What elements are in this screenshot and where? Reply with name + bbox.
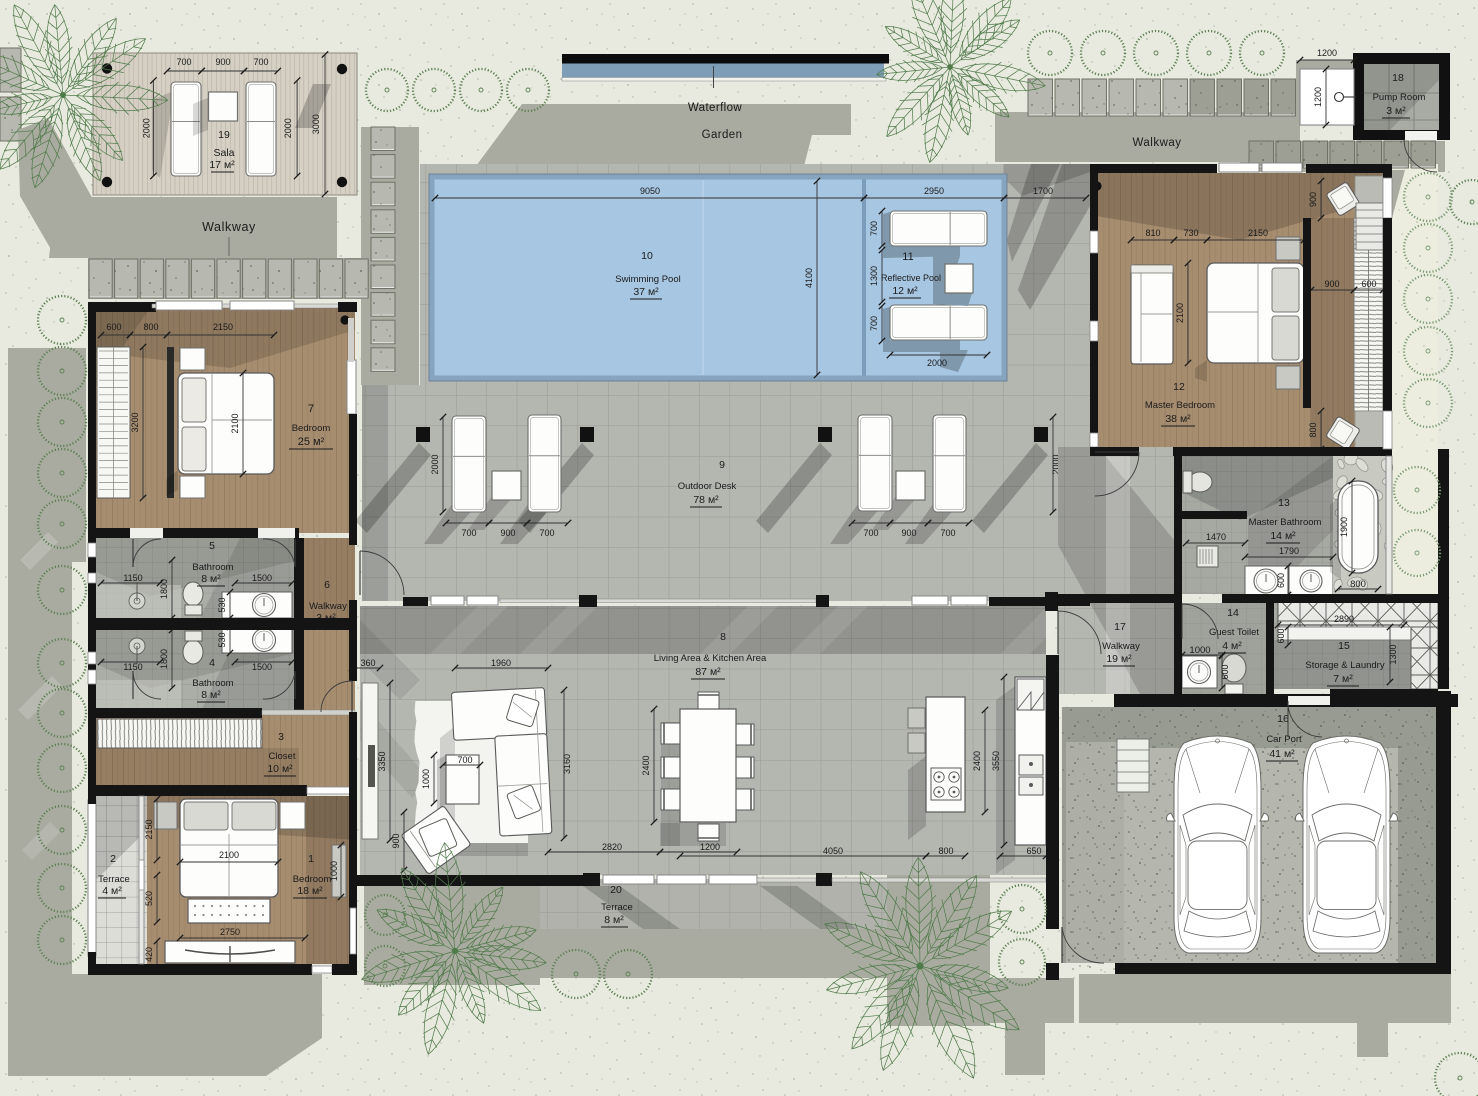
svg-text:600: 600 (1361, 279, 1376, 289)
svg-text:1960: 1960 (491, 658, 511, 668)
svg-text:78 м²: 78 м² (693, 494, 719, 506)
svg-text:3160: 3160 (562, 754, 572, 774)
svg-text:1800: 1800 (159, 579, 169, 599)
svg-text:Bathroom: Bathroom (192, 678, 233, 689)
svg-text:41 м²: 41 м² (1269, 748, 1295, 760)
svg-text:600: 600 (1276, 573, 1286, 588)
svg-text:800: 800 (1350, 579, 1366, 590)
svg-text:Walkway: Walkway (1102, 641, 1140, 652)
svg-text:2100: 2100 (230, 413, 240, 433)
svg-text:Reflective Pool: Reflective Pool (881, 273, 941, 283)
svg-text:600: 600 (1220, 664, 1230, 679)
svg-text:700: 700 (253, 57, 268, 67)
svg-text:Swimming Pool: Swimming Pool (615, 274, 680, 285)
svg-text:2750: 2750 (220, 927, 240, 937)
svg-text:2000: 2000 (141, 118, 151, 138)
svg-text:420: 420 (144, 947, 154, 962)
svg-text:Master Bathroom: Master Bathroom (1249, 517, 1322, 528)
svg-text:Storage & Laundry: Storage & Laundry (1305, 660, 1384, 671)
svg-text:87 м²: 87 м² (695, 666, 721, 678)
svg-text:700: 700 (457, 755, 472, 765)
svg-text:Pump Room: Pump Room (1373, 92, 1426, 103)
svg-text:2: 2 (110, 853, 116, 865)
svg-text:2000: 2000 (283, 118, 293, 138)
svg-text:1800: 1800 (159, 649, 169, 669)
svg-text:1900: 1900 (1339, 517, 1349, 537)
svg-text:14: 14 (1227, 607, 1239, 619)
svg-text:2100: 2100 (1175, 303, 1185, 323)
svg-text:1000: 1000 (421, 769, 431, 789)
svg-text:900: 900 (215, 57, 230, 67)
svg-text:800: 800 (1308, 422, 1318, 437)
svg-text:8 м²: 8 м² (201, 689, 221, 701)
svg-text:Walkway: Walkway (309, 601, 347, 612)
svg-text:8 м²: 8 м² (201, 573, 221, 585)
svg-text:5: 5 (209, 540, 215, 552)
svg-text:17: 17 (1114, 621, 1126, 633)
svg-text:900: 900 (1308, 192, 1318, 207)
svg-text:19 м²: 19 м² (1106, 653, 1132, 665)
svg-text:3200: 3200 (130, 412, 140, 432)
svg-text:8 м²: 8 м² (604, 914, 624, 926)
svg-text:3 м²: 3 м² (1386, 105, 1406, 117)
svg-text:Living Area & Kitchen Area: Living Area & Kitchen Area (654, 653, 767, 664)
svg-text:13: 13 (1278, 497, 1290, 509)
svg-text:2000: 2000 (927, 358, 947, 368)
svg-text:800: 800 (143, 322, 158, 332)
svg-text:Terrace: Terrace (601, 902, 633, 913)
svg-text:8: 8 (720, 631, 726, 643)
svg-text:17 м²: 17 м² (209, 159, 235, 171)
svg-text:2150: 2150 (144, 819, 154, 839)
svg-text:2400: 2400 (972, 751, 982, 771)
svg-text:15: 15 (1338, 640, 1350, 652)
svg-text:10 м²: 10 м² (267, 763, 293, 775)
svg-text:800: 800 (938, 846, 953, 856)
svg-text:Car Port: Car Port (1266, 734, 1302, 745)
svg-text:4 м²: 4 м² (102, 885, 122, 897)
svg-text:Waterflow: Waterflow (688, 102, 743, 114)
svg-text:650: 650 (1026, 846, 1041, 856)
svg-text:6: 6 (324, 579, 330, 591)
svg-text:1500: 1500 (252, 662, 272, 672)
svg-text:1200: 1200 (1313, 87, 1323, 107)
svg-text:12: 12 (1173, 381, 1185, 393)
svg-text:Sala: Sala (213, 147, 234, 159)
svg-text:2400: 2400 (641, 755, 651, 775)
svg-text:2150: 2150 (213, 322, 233, 332)
svg-text:Garden: Garden (702, 129, 743, 141)
svg-text:730: 730 (1183, 228, 1198, 238)
svg-text:700: 700 (869, 316, 879, 331)
svg-text:1150: 1150 (123, 573, 142, 583)
svg-text:4050: 4050 (823, 846, 843, 856)
svg-text:520: 520 (144, 891, 154, 906)
svg-text:1300: 1300 (1388, 644, 1398, 664)
svg-text:600: 600 (1276, 628, 1286, 643)
svg-text:Bedroom: Bedroom (292, 423, 331, 434)
svg-text:1: 1 (308, 853, 314, 865)
svg-text:900: 900 (500, 528, 515, 538)
svg-text:900: 900 (1324, 279, 1339, 289)
svg-text:1300: 1300 (869, 266, 879, 286)
svg-text:14 м²: 14 м² (1270, 530, 1296, 542)
svg-text:2000: 2000 (430, 454, 440, 474)
svg-text:Terrace: Terrace (98, 874, 130, 885)
svg-text:3350: 3350 (377, 751, 387, 771)
svg-text:810: 810 (1145, 228, 1160, 238)
svg-text:1790: 1790 (1279, 546, 1299, 556)
svg-text:700: 700 (539, 528, 554, 538)
svg-text:2820: 2820 (602, 842, 622, 852)
svg-text:700: 700 (461, 528, 476, 538)
svg-text:1500: 1500 (252, 573, 272, 583)
svg-text:20: 20 (610, 884, 622, 896)
svg-text:900: 900 (901, 528, 916, 538)
svg-text:360: 360 (360, 658, 375, 668)
svg-text:19: 19 (218, 129, 230, 141)
svg-text:1700: 1700 (1033, 186, 1053, 196)
svg-text:3550: 3550 (991, 751, 1001, 771)
svg-text:1150: 1150 (123, 662, 142, 672)
svg-text:700: 700 (869, 221, 879, 236)
svg-text:11: 11 (902, 251, 913, 263)
svg-text:Bathroom: Bathroom (192, 562, 233, 573)
svg-text:4 м²: 4 м² (1222, 640, 1242, 652)
svg-text:38 м²: 38 м² (1165, 413, 1191, 425)
svg-text:2890: 2890 (1334, 614, 1354, 624)
svg-text:Master Bedroom: Master Bedroom (1145, 400, 1215, 411)
svg-text:2100: 2100 (219, 850, 239, 860)
svg-text:Walkway: Walkway (1132, 137, 1181, 149)
svg-text:4100: 4100 (804, 268, 814, 288)
svg-text:900: 900 (391, 833, 401, 848)
svg-text:18 м²: 18 м² (297, 885, 323, 897)
svg-text:600: 600 (106, 322, 121, 332)
svg-text:25 м²: 25 м² (298, 436, 325, 448)
svg-text:700: 700 (863, 528, 878, 538)
svg-text:2150: 2150 (1248, 228, 1268, 238)
svg-text:Outdoor Desk: Outdoor Desk (678, 481, 737, 492)
svg-text:1200: 1200 (1317, 48, 1337, 58)
svg-text:Walkway: Walkway (202, 220, 256, 234)
svg-text:4: 4 (209, 657, 215, 669)
svg-text:3: 3 (278, 731, 284, 743)
svg-text:16: 16 (1277, 713, 1289, 725)
svg-text:530: 530 (217, 597, 227, 612)
svg-text:3000: 3000 (311, 114, 321, 134)
svg-text:Bedroom: Bedroom (293, 874, 332, 885)
svg-text:1470: 1470 (1206, 532, 1226, 542)
svg-text:12 м²: 12 м² (892, 285, 918, 297)
svg-text:9050: 9050 (640, 186, 660, 196)
svg-text:700: 700 (176, 57, 191, 67)
svg-text:9: 9 (719, 459, 725, 471)
svg-text:18: 18 (1392, 72, 1404, 84)
svg-text:1000: 1000 (1189, 645, 1210, 656)
svg-text:2950: 2950 (924, 186, 944, 196)
svg-text:37 м²: 37 м² (633, 286, 659, 298)
svg-text:7: 7 (308, 403, 314, 415)
svg-text:10: 10 (641, 250, 653, 262)
svg-text:Closet: Closet (269, 751, 296, 762)
svg-text:700: 700 (940, 528, 955, 538)
svg-text:7 м²: 7 м² (1333, 673, 1353, 685)
svg-text:530: 530 (217, 632, 227, 647)
